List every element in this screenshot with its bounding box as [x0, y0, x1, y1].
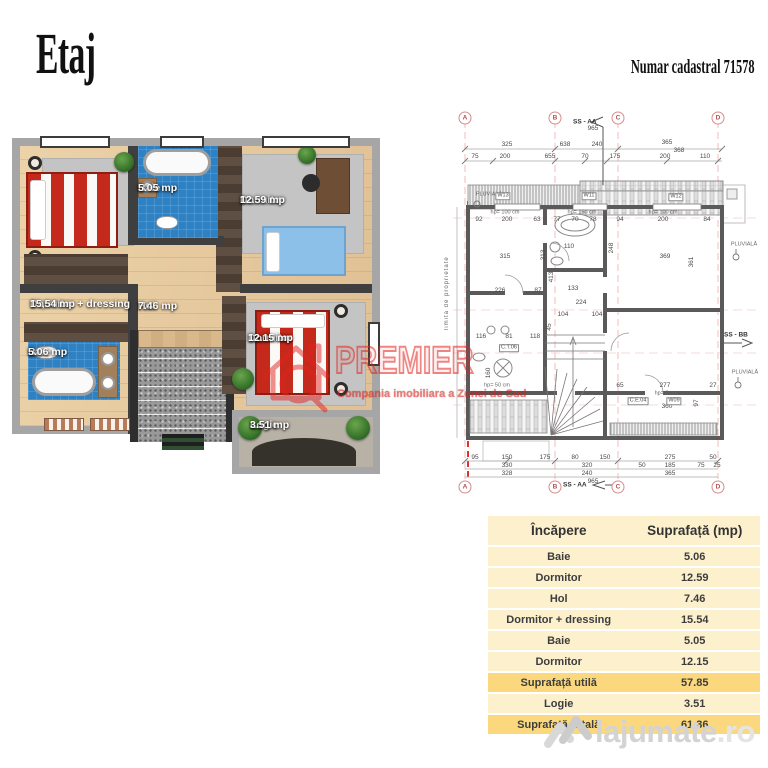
toilet: [156, 216, 178, 229]
dimension-label: 104: [558, 312, 569, 319]
dimension-label: 277: [660, 383, 671, 390]
grid-marker-c-bottom: C: [612, 481, 625, 494]
plant: [232, 368, 254, 390]
dimension-label: 50: [638, 463, 645, 470]
dimension-label: 50: [709, 455, 716, 462]
dimension-label: 965: [588, 126, 599, 133]
window-label: W11: [582, 192, 597, 200]
dimension-label: 369: [660, 254, 671, 261]
table-row: Dormitor + dressing15.54: [488, 610, 760, 629]
dimension-label: 185: [665, 463, 676, 470]
dimension-label: 84: [703, 217, 710, 224]
table-row: Dormitor12.59: [488, 568, 760, 587]
grid-marker-d-bottom: D: [712, 481, 725, 494]
pluviala-label: PLUVIALĂ: [732, 370, 758, 376]
grid-marker-b-top: B: [549, 112, 562, 125]
dimension-label: 27: [709, 383, 716, 390]
room-name-cell: Baie: [488, 635, 629, 647]
dimension-label: 118: [530, 334, 540, 341]
dimension-label: 200: [658, 217, 669, 224]
chair: [302, 174, 320, 192]
table-header-room: Încăpere: [488, 523, 629, 538]
plant: [346, 416, 370, 440]
pillow: [30, 180, 46, 240]
logie-arch: [252, 438, 356, 466]
dimension-label: 80: [571, 455, 578, 462]
desk: [316, 158, 350, 214]
sill-height-label: hp= 0 cm: [655, 391, 678, 397]
grid-marker-d-top: D: [712, 112, 725, 125]
dimension-label: 368: [674, 148, 685, 155]
room-name-cell: Logie: [488, 698, 629, 710]
room-area-cell: 12.15: [629, 656, 760, 668]
grid-marker-c-top: C: [612, 112, 625, 125]
dimension-label: 70: [581, 154, 588, 161]
dimension-label: 92: [475, 217, 482, 224]
bed: [255, 310, 330, 395]
room-name-cell: Suprafață totală: [488, 719, 629, 731]
plant: [114, 152, 134, 172]
hall-dark-planks: [216, 146, 242, 292]
dimension-label: 110: [564, 244, 574, 251]
dimension-label: 365: [662, 140, 673, 147]
table-row: Baie5.06: [488, 547, 760, 566]
table-header-row: Încăpere Suprafață (mp): [488, 516, 760, 545]
dimension-label: 325: [502, 142, 513, 149]
nightstand: [28, 156, 42, 170]
dimension-label: 150: [502, 455, 513, 462]
table-row: Logie3.51: [488, 694, 760, 713]
dimension-label: 63: [533, 217, 540, 224]
dimension-label: 655: [545, 154, 556, 161]
dimension-label: 75: [697, 463, 704, 470]
dimension-label: 328: [502, 471, 513, 478]
interior-wall: [240, 284, 372, 293]
wardrobe: [24, 322, 128, 342]
window: [262, 136, 350, 148]
dimension-label: 133: [568, 286, 579, 293]
sink: [101, 376, 115, 390]
dimension-label: 110: [700, 154, 710, 161]
dimension-label: 315: [500, 254, 511, 261]
dimension-label: 78: [589, 217, 596, 224]
dimension-label: 965: [588, 479, 599, 486]
nightstand: [334, 382, 348, 396]
grid-marker-a-top: A: [459, 112, 472, 125]
table-row: Suprafață totală61.36: [488, 715, 760, 734]
window-label: W12: [668, 193, 683, 201]
table-row: Hol7.46: [488, 589, 760, 608]
room-area-cell: 61.36: [629, 719, 760, 731]
room-name-cell: Dormitor: [488, 656, 629, 668]
pillow: [261, 314, 325, 328]
floor-plan-3d: Dormitor + dressing15,54 mp Baie5.05 mp …: [10, 132, 392, 484]
stairs: [138, 348, 226, 442]
dimension-label: 200: [502, 217, 513, 224]
grid-marker-a-bottom: A: [459, 481, 472, 494]
dimension-label: 361: [689, 257, 696, 268]
dimension-label: 25: [713, 463, 720, 470]
property-line-label: limita de proprietate: [444, 200, 450, 330]
dimension-label: 175: [610, 154, 621, 161]
room-area-cell: 15.54: [629, 614, 760, 626]
room-area-cell: 5.05: [629, 635, 760, 647]
room-area-cell: 7.46: [629, 593, 760, 605]
room-area-cell: 12.59: [629, 572, 760, 584]
sink: [101, 352, 115, 366]
dimension-label: 70: [571, 217, 578, 224]
table-header-area: Suprafață (mp): [629, 523, 760, 538]
plant: [298, 146, 316, 164]
area-table: Încăpere Suprafață (mp) Baie5.06Dormitor…: [488, 516, 760, 734]
bed: [26, 172, 118, 248]
dimension-label: 224: [576, 300, 587, 307]
section-marker-bb: SS - BB: [724, 332, 748, 339]
dimension-label: 97: [694, 399, 701, 406]
page-title: Etaj: [36, 20, 95, 87]
room-code-label: C.T.06: [499, 344, 519, 352]
bathtub: [143, 149, 211, 176]
dimension-label: 226: [495, 288, 506, 295]
stair-entry: [162, 434, 204, 450]
room-name-cell: Dormitor + dressing: [488, 614, 629, 626]
dimension-label: 75: [471, 154, 478, 161]
dimension-label: 65: [616, 383, 623, 390]
pluviala-label: PLUVIALĂ: [731, 242, 757, 248]
dimension-label: 175: [540, 455, 551, 462]
window: [40, 136, 110, 148]
radiator: [44, 418, 84, 431]
window: [368, 322, 380, 366]
dimension-label: 81: [505, 334, 512, 341]
dimension-label: 200: [660, 154, 671, 161]
technical-drawing-canvas: [445, 105, 765, 505]
window-label: W13: [495, 192, 510, 200]
technical-floor-plan: A B C D A B C D SS - AA SS - AA SS - BB …: [445, 105, 765, 505]
dimension-label: 150: [600, 455, 611, 462]
room-name-cell: Hol: [488, 593, 629, 605]
dimension-label: 240: [592, 142, 603, 149]
stair-wall: [130, 330, 138, 442]
dimension-label: 160: [486, 368, 493, 379]
nightstand: [334, 304, 348, 318]
dimension-label: 87: [534, 288, 541, 295]
bed-blue: [262, 226, 346, 276]
dimension-label: 116: [476, 334, 486, 341]
room-code-label: C.E.04: [628, 397, 649, 405]
sill-height-label: hp= 50 cm: [484, 383, 510, 389]
dimension-label: 248: [609, 243, 616, 254]
interior-wall: [20, 284, 130, 293]
room-name-cell: Suprafață utilă: [488, 677, 629, 689]
dimension-label: 365: [665, 471, 676, 478]
dimension-label: 45: [547, 323, 554, 330]
dimension-label: 330: [502, 463, 513, 470]
dimension-label: 200: [500, 154, 511, 161]
table-row: Dormitor12.15: [488, 652, 760, 671]
dimension-label: 320: [582, 463, 593, 470]
window-label: W09: [666, 397, 681, 405]
section-marker-aa-bottom: SS - AA: [563, 482, 587, 489]
bathtub: [32, 368, 96, 396]
pillow: [266, 232, 280, 272]
dimension-label: 240: [582, 471, 593, 478]
room-area-cell: 5.06: [629, 551, 760, 563]
dimension-label: 94: [616, 217, 623, 224]
room-name-cell: Dormitor: [488, 572, 629, 584]
room-area-cell: 3.51: [629, 698, 760, 710]
stair-landing: [138, 330, 226, 348]
table-row: Suprafață utilă57.85: [488, 673, 760, 692]
table-body: Baie5.06Dormitor12.59Hol7.46Dormitor + d…: [488, 547, 760, 734]
wardrobe: [24, 254, 128, 284]
window: [160, 136, 204, 148]
dimension-label: 275: [665, 455, 676, 462]
room-name-cell: Baie: [488, 551, 629, 563]
dimension-label: 77: [553, 217, 560, 224]
dimension-label: 638: [560, 142, 571, 149]
grid-marker-b-bottom: B: [549, 481, 562, 494]
room-area-cell: 57.85: [629, 677, 760, 689]
radiator: [90, 418, 130, 431]
table-row: Baie5.05: [488, 631, 760, 650]
dimension-label: 413: [549, 272, 556, 283]
cadastral-number: Numar cadastral 71578: [631, 56, 755, 79]
dimension-label: 95: [471, 455, 478, 462]
dimension-label: 313: [541, 250, 548, 261]
dimension-label: 104: [592, 312, 603, 319]
